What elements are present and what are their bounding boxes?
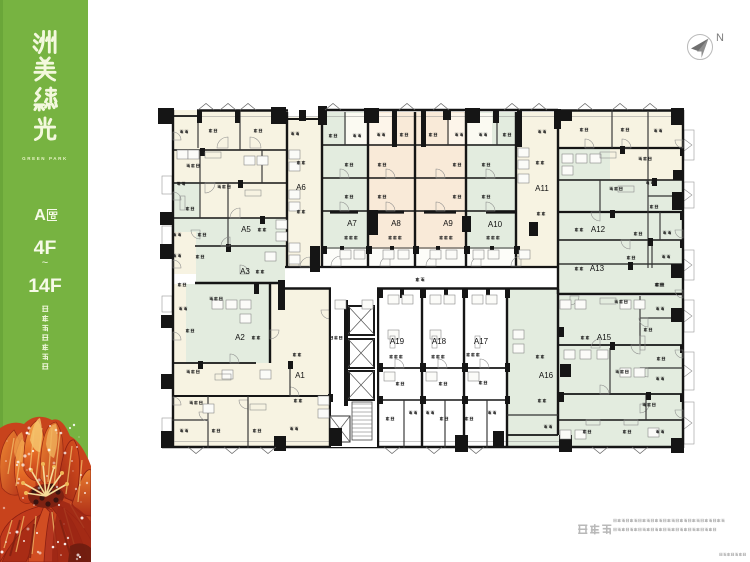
svg-text:A9: A9 — [443, 219, 453, 228]
svg-text:A11: A11 — [535, 184, 549, 193]
svg-text:A18: A18 — [432, 337, 447, 346]
svg-text:N: N — [716, 32, 724, 44]
svg-text:A13: A13 — [590, 264, 605, 273]
svg-text:14F: 14F — [28, 275, 62, 297]
svg-text:A8: A8 — [391, 219, 401, 228]
svg-text:A1: A1 — [295, 371, 305, 380]
svg-text:A19: A19 — [390, 337, 405, 346]
svg-text:A6: A6 — [296, 183, 306, 192]
svg-text:GREEN PARK: GREEN PARK — [22, 156, 68, 161]
svg-text:A15: A15 — [597, 333, 612, 342]
svg-text:A5: A5 — [241, 225, 251, 234]
svg-text:A: A — [34, 207, 46, 224]
svg-text:A17: A17 — [474, 337, 489, 346]
svg-text:A3: A3 — [240, 267, 250, 276]
svg-text:A12: A12 — [591, 225, 606, 234]
svg-text:A10: A10 — [488, 220, 503, 229]
svg-text:A7: A7 — [347, 219, 357, 228]
svg-text:A16: A16 — [539, 371, 554, 380]
svg-text:A2: A2 — [235, 333, 245, 342]
svg-text:4F: 4F — [34, 237, 57, 259]
svg-text:~: ~ — [42, 257, 48, 269]
